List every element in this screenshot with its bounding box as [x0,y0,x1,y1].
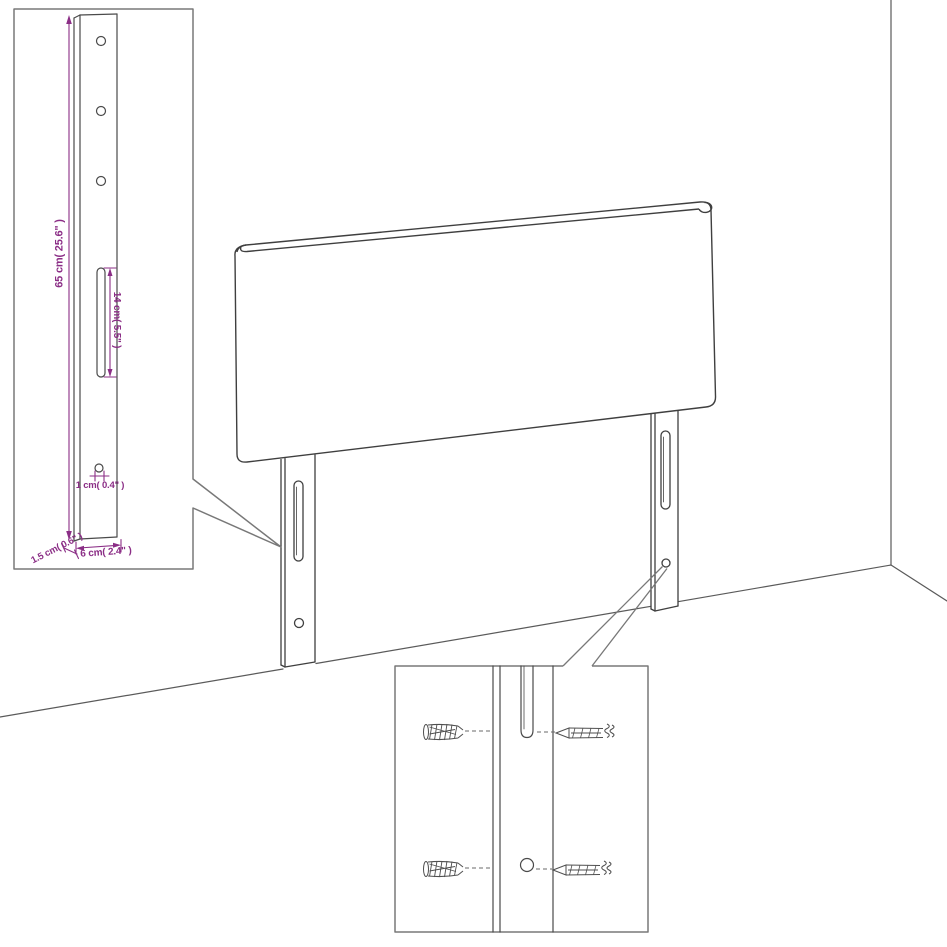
diagram-page: { "diagram": { "title": "Headboard with … [0,0,947,947]
left-leg-slot [294,481,303,561]
left-leg-bottom-edge [285,662,315,667]
dimension-label-65cm: 65 cm( 25.6" ) [55,193,66,315]
right-leg-bottom-edge [655,606,678,611]
floor-line-right [891,565,947,601]
dimension-label-1cm: 1 cm( 0.4" ) [55,481,145,491]
right-leg-slot [661,431,670,509]
hardware-inset-pointer-line-left [563,567,663,667]
left-leg [281,455,315,667]
right-leg [651,411,678,611]
right-leg-hole [662,559,670,567]
headboard-panel [235,202,716,462]
floor-line-segment-left [0,669,283,717]
left-leg-hole [295,619,304,628]
dimension-label-14cm: 14 cm( 5.5" ) [111,275,121,365]
floor-line-segment-corner [678,565,891,602]
panel-outline [235,202,716,462]
hardware-inset [395,567,667,933]
hardware-inset-pointer-line-right [592,569,667,667]
assembly-diagram-canvas [0,0,947,947]
